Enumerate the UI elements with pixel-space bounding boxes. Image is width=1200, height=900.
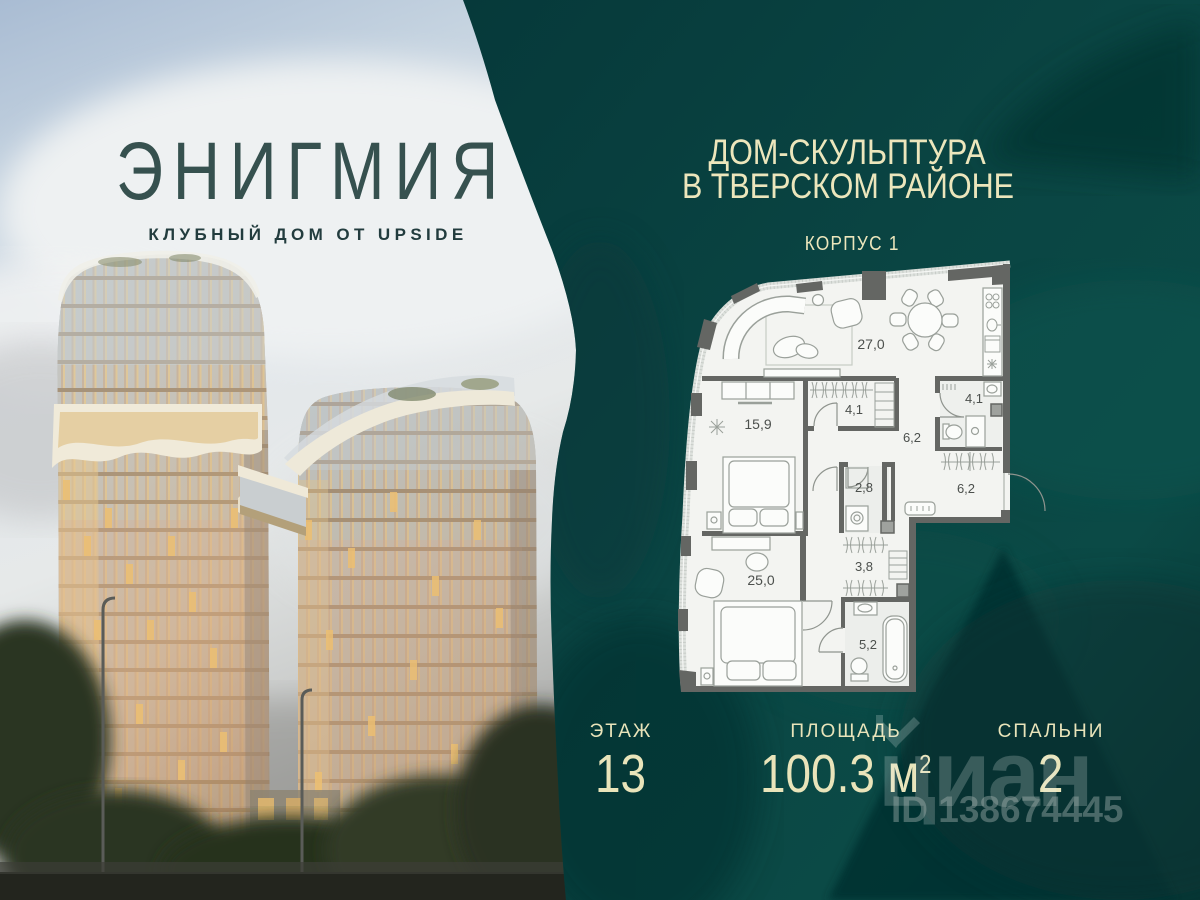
- svg-text:КЛУБНЫЙ ДОМ ОТ UPSIDE: КЛУБНЫЙ ДОМ ОТ UPSIDE: [148, 225, 467, 244]
- svg-text:ЭНИГМИЯ: ЭНИГМИЯ: [116, 125, 508, 217]
- svg-text:В ТВЕРСКОМ РАЙОНЕ: В ТВЕРСКОМ РАЙОНЕ: [682, 166, 1014, 207]
- svg-text:5,2: 5,2: [859, 637, 877, 652]
- svg-text:4,1: 4,1: [965, 391, 983, 406]
- svg-text:4,1: 4,1: [845, 402, 863, 417]
- svg-text:2,8: 2,8: [855, 480, 873, 495]
- svg-text:ID 138674445: ID 138674445: [891, 789, 1123, 830]
- svg-text:6,2: 6,2: [903, 430, 921, 445]
- svg-text:13: 13: [595, 744, 646, 804]
- svg-text:15,9: 15,9: [744, 416, 771, 432]
- svg-text:27,0: 27,0: [857, 336, 884, 352]
- svg-text:6,2: 6,2: [957, 481, 975, 496]
- svg-text:25,0: 25,0: [747, 572, 774, 588]
- svg-text:КОРПУС 1: КОРПУС 1: [805, 232, 900, 255]
- svg-text:ЭТАЖ: ЭТАЖ: [590, 721, 653, 742]
- svg-text:3,8: 3,8: [855, 559, 873, 574]
